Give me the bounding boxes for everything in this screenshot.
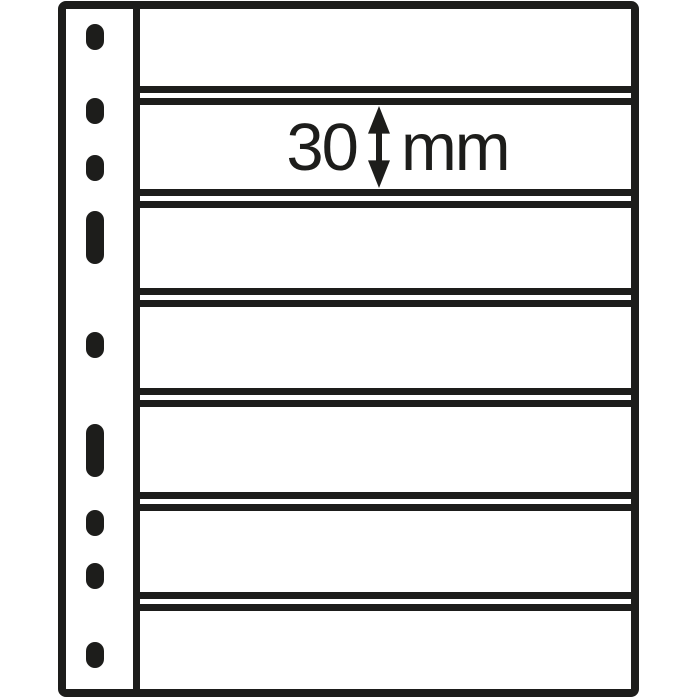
binding-divider-line xyxy=(133,9,140,689)
pocket-height-label: 30 mm xyxy=(152,105,643,189)
punch-hole-small xyxy=(86,510,104,536)
punch-hole-small xyxy=(86,332,104,358)
punch-hole-small xyxy=(86,24,104,50)
pocket-separator xyxy=(140,492,631,511)
pocket-separator xyxy=(140,388,631,407)
punch-hole-long xyxy=(86,211,104,264)
punch-hole-small xyxy=(86,642,104,668)
vertical-double-arrow-icon xyxy=(368,106,390,188)
album-sheet: 30 mm xyxy=(58,1,639,697)
pocket-separator xyxy=(140,592,631,611)
measurement-value: 30 xyxy=(286,114,357,181)
punch-hole-small xyxy=(86,98,104,124)
pocket-separator xyxy=(140,86,631,105)
punch-hole-small xyxy=(86,563,104,589)
pocket-separator xyxy=(140,189,631,208)
measurement-unit: mm xyxy=(401,114,509,181)
punch-hole-long xyxy=(86,424,104,477)
illustration-canvas: 30 mm xyxy=(0,0,700,700)
punch-hole-small xyxy=(86,155,104,181)
pocket-separator xyxy=(140,288,631,307)
